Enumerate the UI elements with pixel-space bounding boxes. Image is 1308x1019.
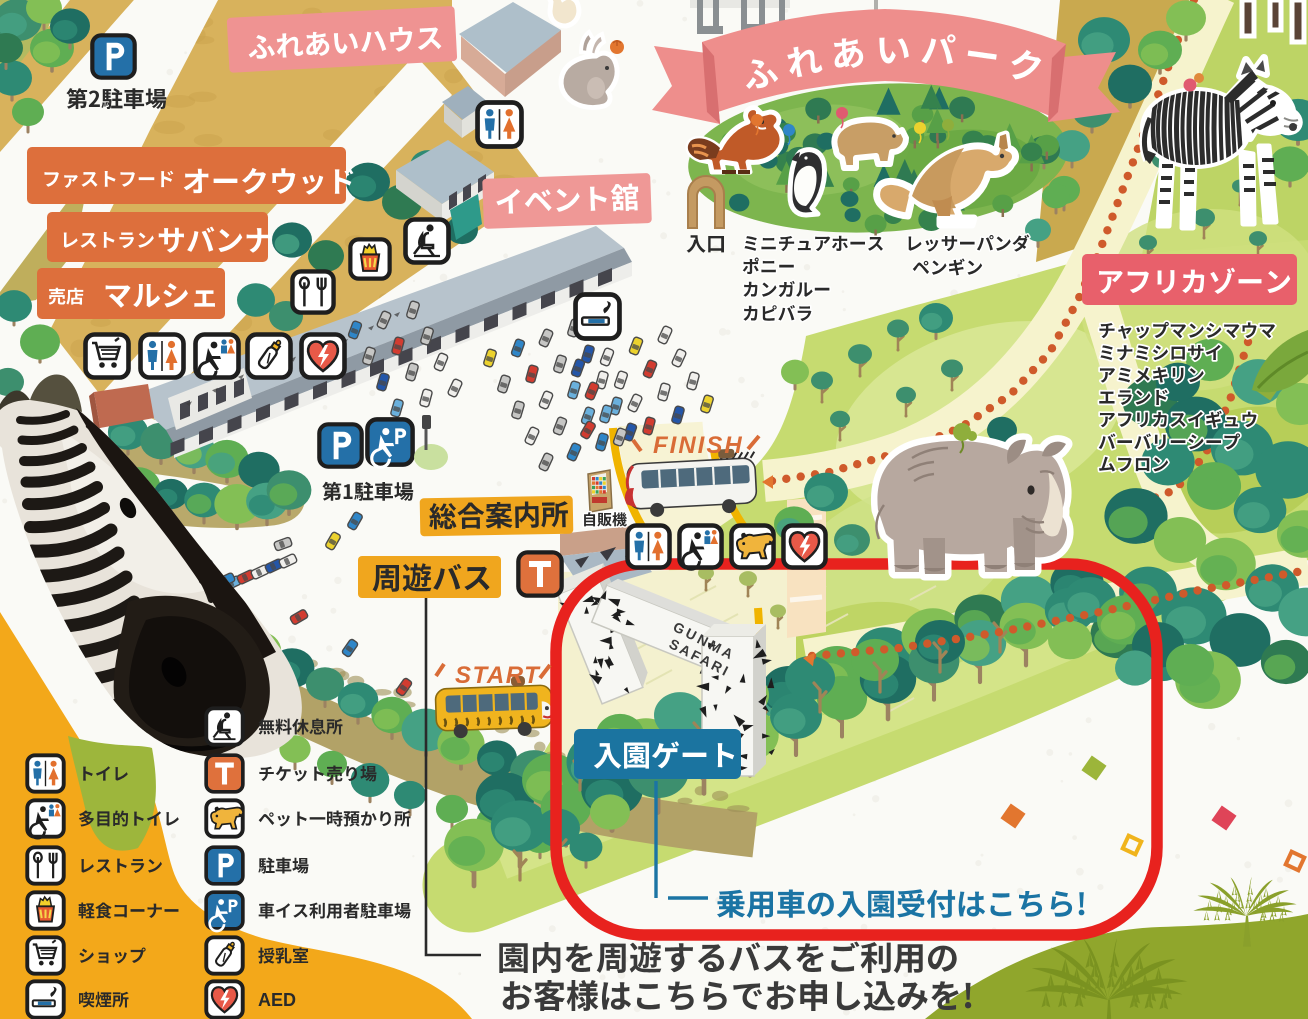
svg-text:START: START xyxy=(455,662,541,689)
svg-text:AED: AED xyxy=(258,990,296,1010)
svg-text:FINISH: FINISH xyxy=(653,432,744,459)
